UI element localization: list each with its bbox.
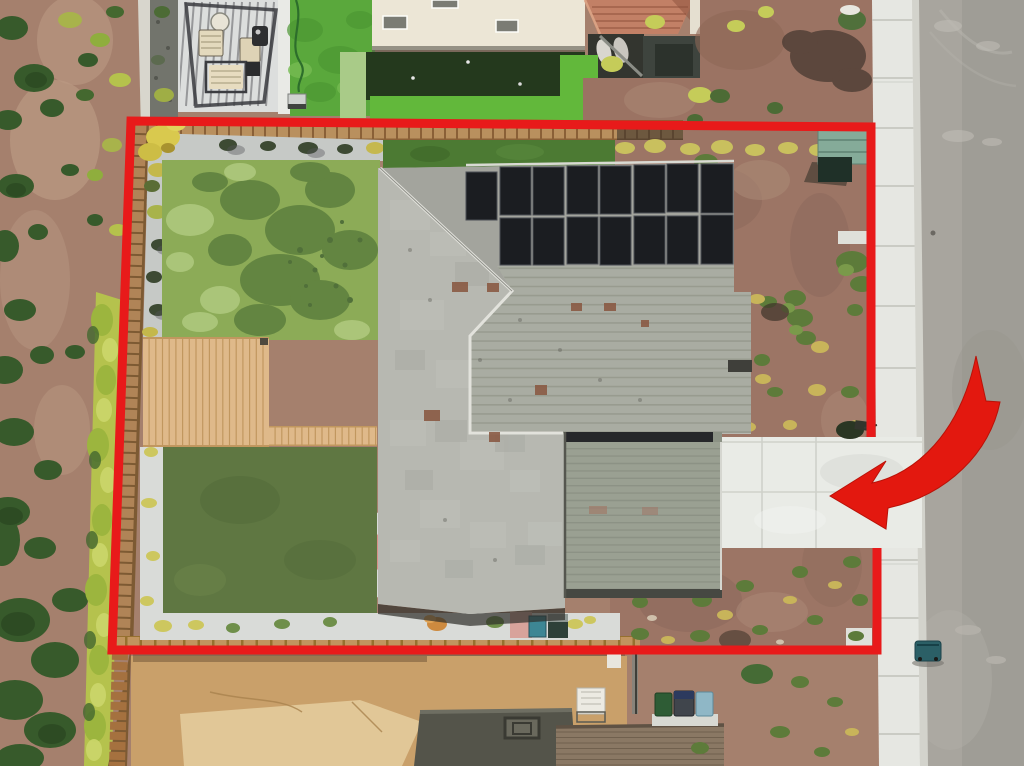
street-trash-bin (912, 641, 944, 667)
neighbor-putting-green (363, 52, 585, 100)
grill (252, 26, 268, 46)
lawn (162, 160, 380, 340)
subject-house-roof (378, 161, 752, 626)
patio-cover-roof (414, 710, 576, 766)
mid-roof-plane (470, 260, 751, 436)
waste-bins (655, 691, 713, 716)
concrete-border (140, 447, 163, 640)
chimney-vent (728, 360, 752, 372)
garage-roof (565, 432, 722, 598)
path-stub (838, 231, 870, 244)
aerial-photo (0, 0, 1024, 766)
